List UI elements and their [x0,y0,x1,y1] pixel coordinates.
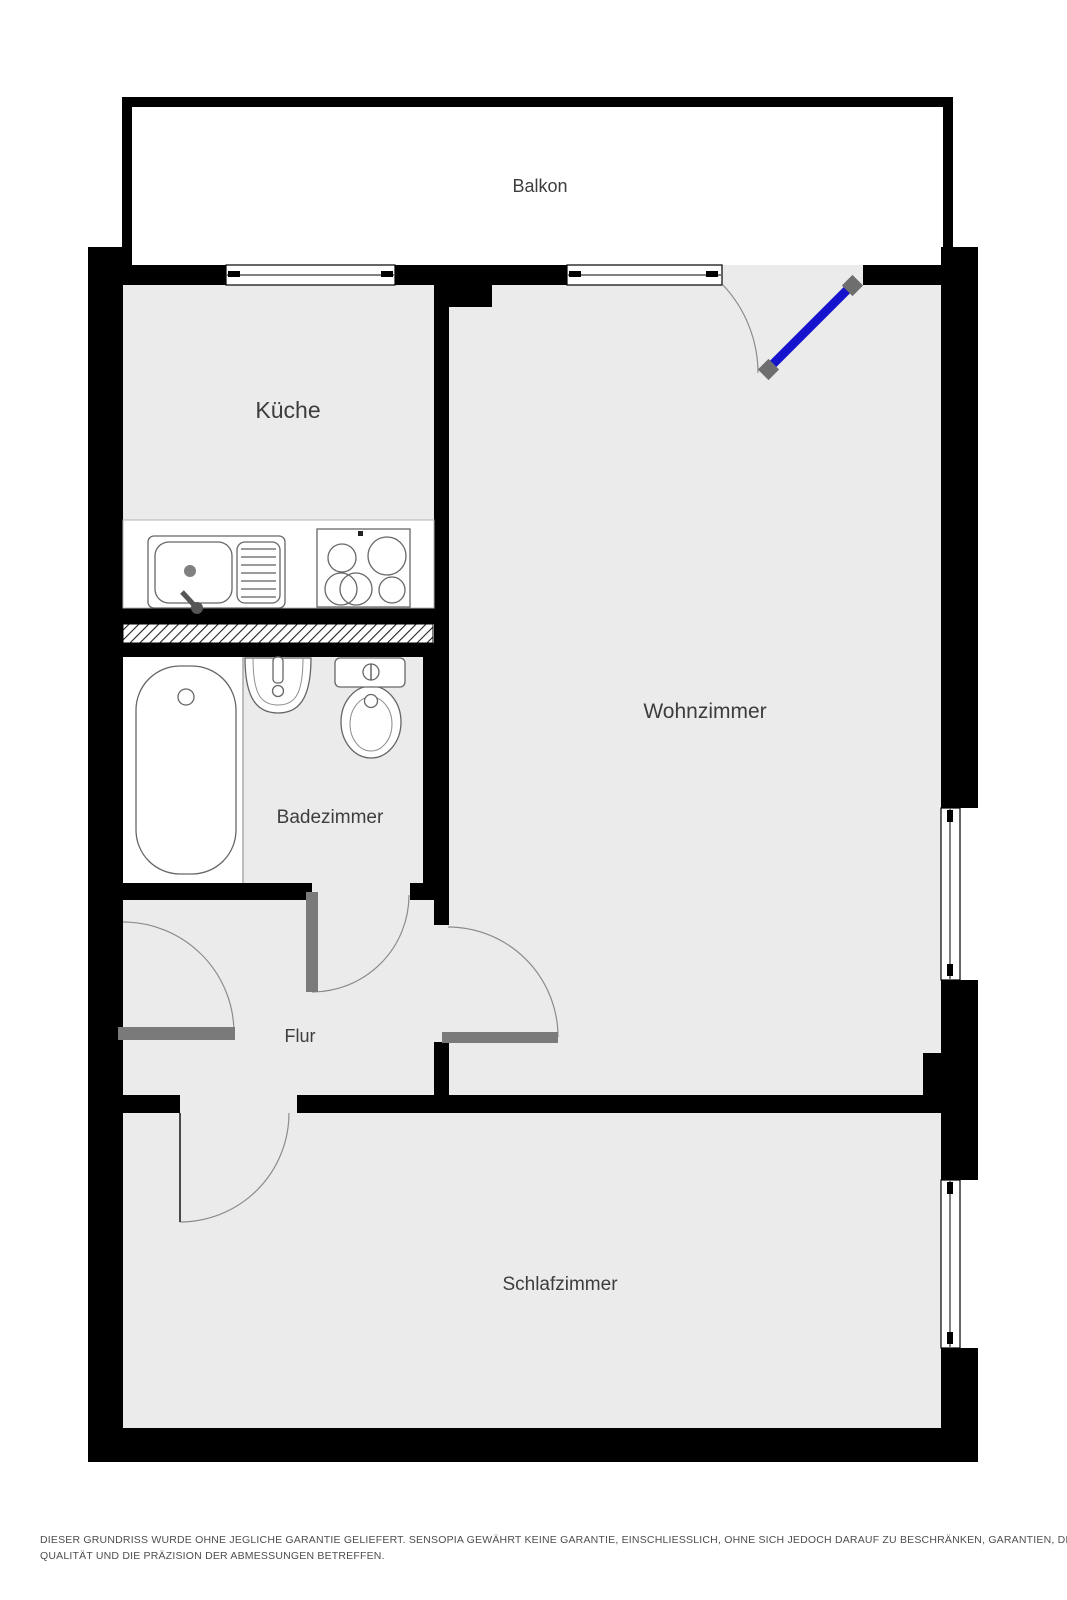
room-label-kueche: Küche [255,397,320,423]
wall-below-counter [120,608,448,624]
window-tick [569,271,581,277]
stove-top [317,529,410,607]
window-bedroom-east [941,1180,960,1348]
bathtub-drain [178,689,194,705]
room-label-flur: Flur [285,1026,316,1046]
livingroom-door-threshold [434,925,449,1042]
wall-right-bedroom-upper [941,1100,978,1180]
disclaimer-line-1: DIESER GRUNDRISS WURDE OHNE JEGLICHE GAR… [40,1534,1067,1546]
window-tick [947,1332,953,1344]
wall-top-a [88,265,227,285]
livingroom-door-leaf [442,1032,558,1043]
room-label-schlafzimmer: Schlafzimmer [502,1274,618,1295]
wall-exterior-bottom [88,1428,978,1462]
room-floor-schlafzimmer [123,1113,941,1428]
stove-control [358,531,363,536]
toilet-drain [365,695,378,708]
disclaimer: DIESER GRUNDRISS WURDE OHNE JEGLICHE GAR… [40,1534,1067,1562]
window-tick [947,1182,953,1194]
wall-right-upper [941,247,978,808]
wall-right-mid [941,980,978,1053]
wall-top-b [395,265,567,285]
window-tick [947,810,953,822]
sink-drain [184,565,196,577]
sink-drain [273,686,284,697]
floorplan-canvas: Balkon Küche Wohnzimmer Badezimmer Flur … [0,0,1067,1600]
wall-balcony-left [122,97,132,265]
sink-faucet-knob [191,602,203,614]
stove-icon [317,529,410,607]
room-label-badezimmer: Badezimmer [277,807,384,828]
wall-hall-bedroom-a [123,1095,180,1113]
window-living-balcony [567,265,722,285]
floorplan-page: Balkon Küche Wohnzimmer Badezimmer Flur … [0,0,1067,1600]
wall-right-step [923,1053,978,1102]
kitchen-sink-icon [148,536,285,614]
wall-balcony-top [122,97,953,107]
wall-bathroom-south-b [410,883,434,900]
wall-bathroom-south-a [123,883,312,900]
window-tick [381,271,393,277]
bathtub-icon [136,666,236,874]
wall-bathroom-east [423,657,434,883]
wall-divider-pillar [448,283,492,307]
wall-hall-living-lower [434,1042,449,1098]
room-label-wohnzimmer: Wohnzimmer [643,700,766,723]
window-tick [706,271,718,277]
sink-faucet [273,657,283,683]
room-label-balkon: Balkon [512,176,567,196]
wall-balcony-right [943,97,953,267]
bathroom-door-leaf [306,892,318,992]
duct-shaft-hatch [123,624,433,643]
balcony-door-threshold [722,265,863,285]
window-tick [947,964,953,976]
wall-bedroom-north [297,1095,943,1113]
room-floor-flur [123,900,434,1095]
kitchen-fixtures [123,520,434,614]
room-floor-wohnzimmer [449,285,943,1095]
wall-kitchen-living-divider [434,283,449,925]
wall-bathroom-north [120,643,448,657]
drainboard-ridges [241,549,276,597]
bathroom-door-threshold [312,883,410,900]
window-tick [228,271,240,277]
entry-door-leaf [118,1027,235,1040]
disclaimer-line-2: QUALITÄT UND DIE PRÄZISION DER ABMESSUNG… [40,1550,385,1562]
wall-exterior-left [88,247,123,1462]
window-living-east [941,808,960,980]
bedroom-door-threshold [180,1095,297,1113]
window-kitchen-balcony [226,265,395,285]
